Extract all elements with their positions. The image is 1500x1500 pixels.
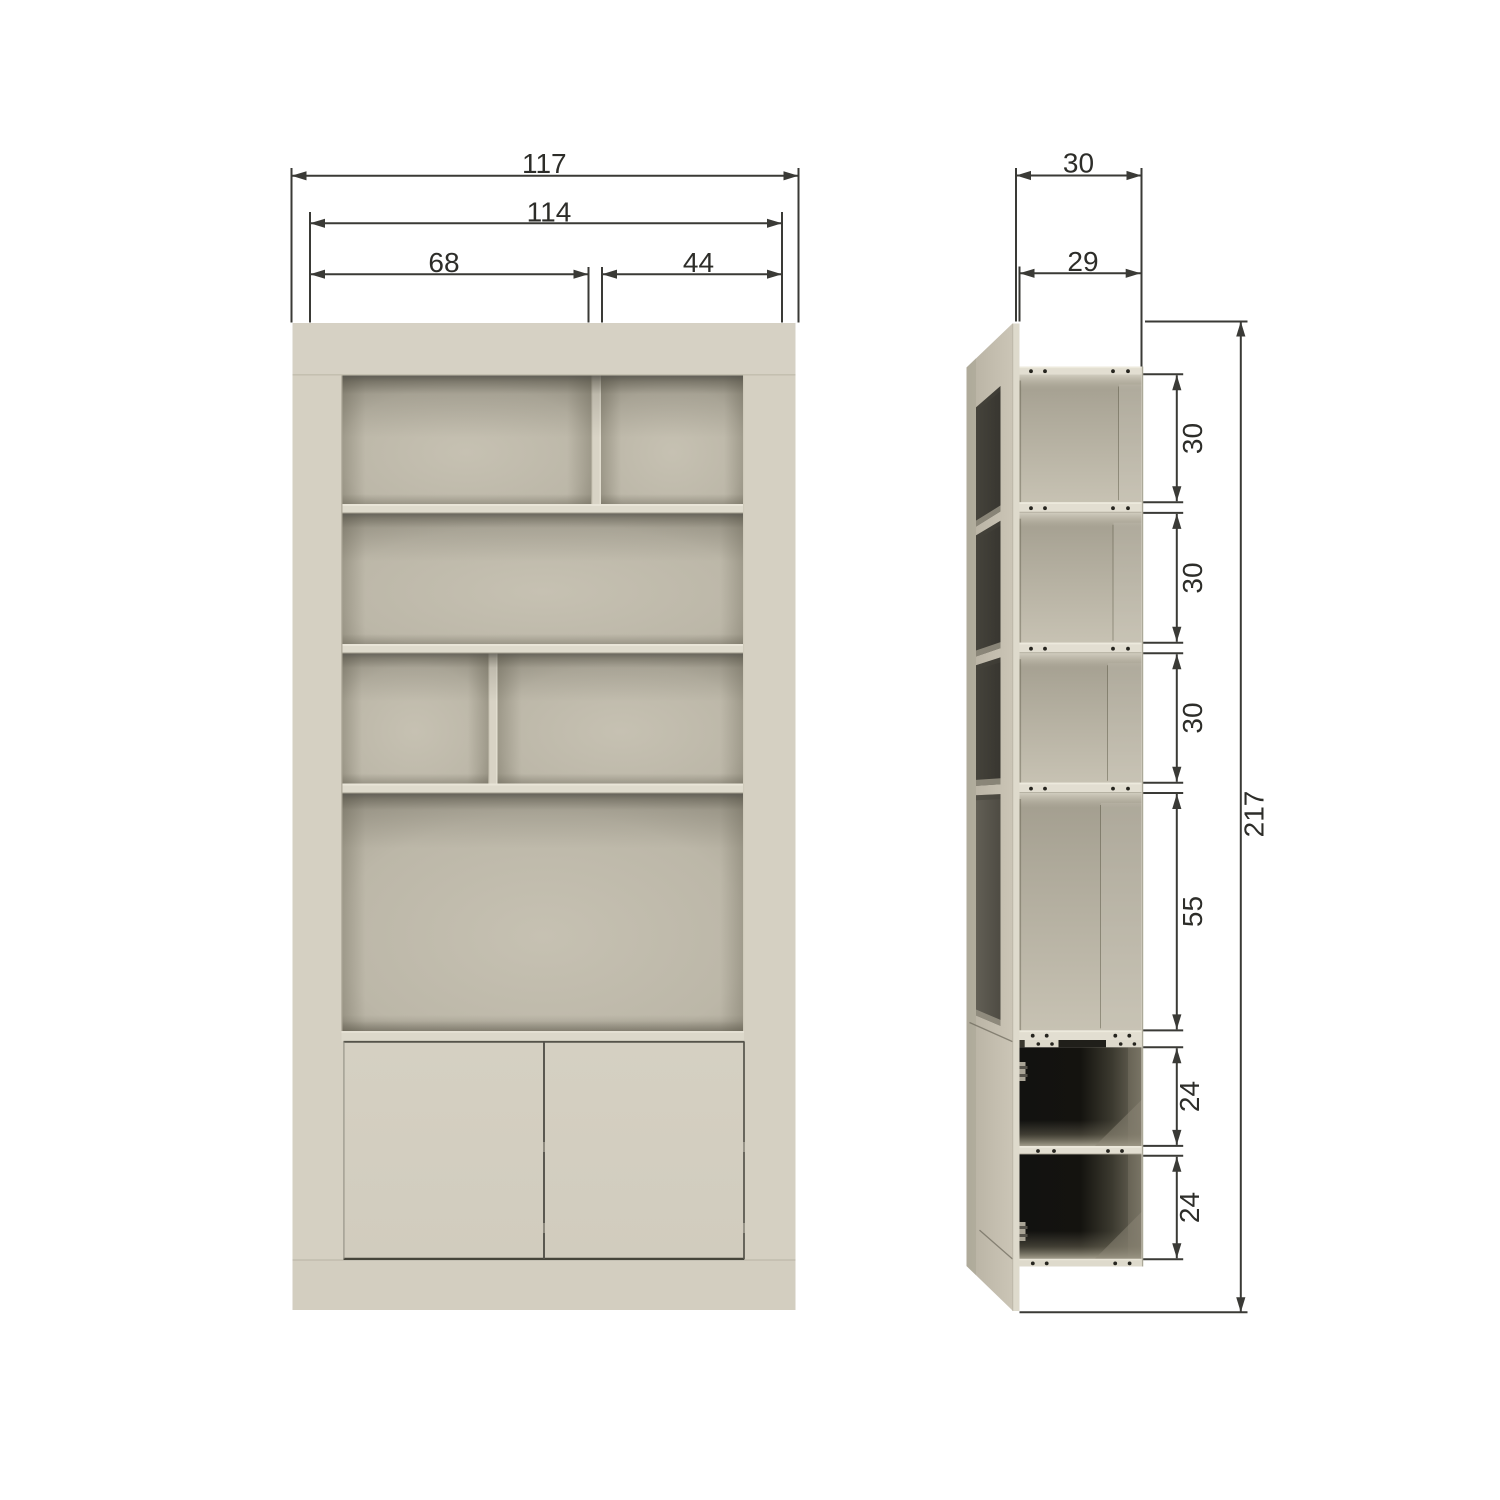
svg-text:29: 29: [1067, 246, 1098, 277]
svg-text:117: 117: [522, 148, 567, 179]
svg-text:44: 44: [683, 247, 714, 278]
svg-text:30: 30: [1177, 702, 1208, 733]
svg-text:55: 55: [1177, 896, 1208, 927]
svg-text:114: 114: [527, 197, 572, 228]
svg-text:30: 30: [1177, 423, 1208, 454]
svg-text:68: 68: [428, 247, 459, 278]
svg-text:24: 24: [1174, 1081, 1205, 1112]
svg-text:217: 217: [1238, 791, 1269, 838]
svg-text:30: 30: [1063, 148, 1094, 179]
svg-text:30: 30: [1177, 562, 1208, 593]
svg-text:24: 24: [1174, 1192, 1205, 1223]
